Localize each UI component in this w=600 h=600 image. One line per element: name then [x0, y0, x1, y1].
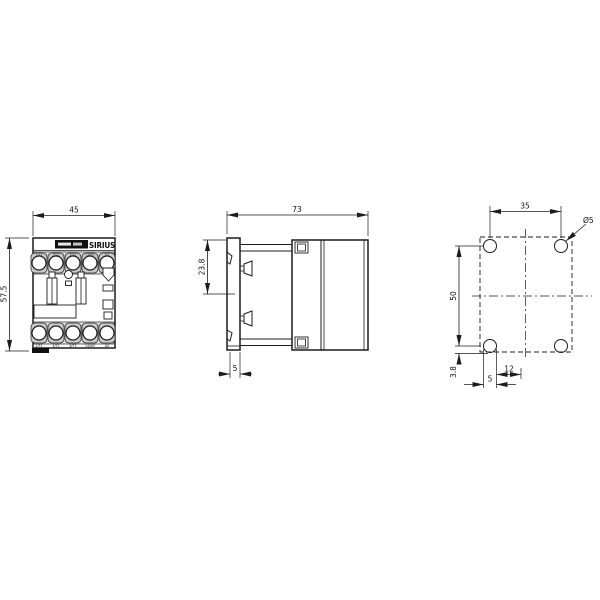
dim-text: 5 [233, 364, 238, 373]
dim-text: 35 [520, 202, 530, 211]
dim-side-rail-clip: 23.8 [198, 240, 236, 294]
screw-terminal [32, 256, 46, 270]
screw-terminal [66, 326, 80, 340]
bottom-label-box [32, 348, 49, 353]
front-middle-details [34, 268, 114, 319]
dim-text: 45 [69, 206, 79, 215]
screw-terminal [49, 256, 63, 270]
screw-terminal [100, 326, 114, 340]
dim-text: 5 [488, 375, 493, 384]
terminal-label: 5/L3 [70, 253, 77, 257]
indicator-circle [65, 271, 73, 279]
terminal-label: 3/L2 [53, 253, 60, 257]
dim-text: 3.8 [449, 366, 458, 378]
marker-window [34, 305, 76, 318]
terminal-label: 14/NO [85, 344, 96, 348]
side-view: 73 23.8 5 [198, 205, 369, 378]
screw-terminal [83, 256, 97, 270]
dim-text: 57.5 [0, 285, 9, 302]
dim-side-foot: 5 [218, 352, 252, 378]
nameplate-text-mark [58, 243, 71, 246]
terminal-label: 1/L1 [36, 253, 43, 257]
drawing-canvas: SIRIUS 1/L1 3/L2 5/L3 13/NO A1 [0, 0, 600, 600]
dim-slot-width: 5 [464, 375, 516, 385]
front-view: SIRIUS 1/L1 3/L2 5/L3 13/NO A1 [0, 206, 115, 354]
mounting-hole-bottom-left [484, 340, 497, 353]
terminal-label: A2 [105, 344, 109, 348]
dim-front-width: 45 [33, 206, 115, 237]
dim-text: Ø5 [583, 216, 594, 225]
dim-hole-diameter: Ø5 [566, 216, 594, 241]
dim-offset: 12 [497, 365, 522, 380]
dim-text: 12 [504, 365, 514, 374]
accessory-tab [103, 268, 114, 281]
screw-terminal [49, 326, 63, 340]
dim-front-height: 57.5 [0, 238, 29, 351]
dim-side-depth: 73 [227, 205, 368, 236]
mounting-hole-bottom-right [555, 340, 568, 353]
side-body-outline [292, 240, 368, 350]
screw-terminal [83, 326, 97, 340]
top-terminals: 1/L1 3/L2 5/L3 13/NO A1 [31, 253, 115, 273]
mounting-hole-top-right [555, 240, 568, 253]
device-outline-dashed [480, 237, 572, 352]
terminal-label: 4/T2 [52, 344, 59, 348]
nameplate-text-mark [73, 243, 82, 246]
dim-text: 73 [292, 205, 302, 214]
terminal-label: A1 [105, 253, 109, 257]
mounting-hole-top-left [484, 240, 497, 253]
screw-terminal [66, 256, 80, 270]
screw-terminal [32, 326, 46, 340]
terminal-label: 2/T1 [35, 344, 42, 348]
terminal-label: 6/T3 [69, 344, 76, 348]
terminal-label: 13/NO [85, 253, 95, 257]
mounting-view: 35 Ø5 50 3.8 12 5 [449, 202, 594, 389]
din-clip-tabs [240, 261, 252, 326]
dim-text: 23.8 [198, 258, 207, 275]
brand-label: SIRIUS [89, 241, 115, 250]
dimension-drawing: SIRIUS 1/L1 3/L2 5/L3 13/NO A1 [0, 0, 600, 600]
dim-slot-extension: 3.8 [449, 354, 488, 378]
dim-text: 50 [449, 291, 458, 301]
